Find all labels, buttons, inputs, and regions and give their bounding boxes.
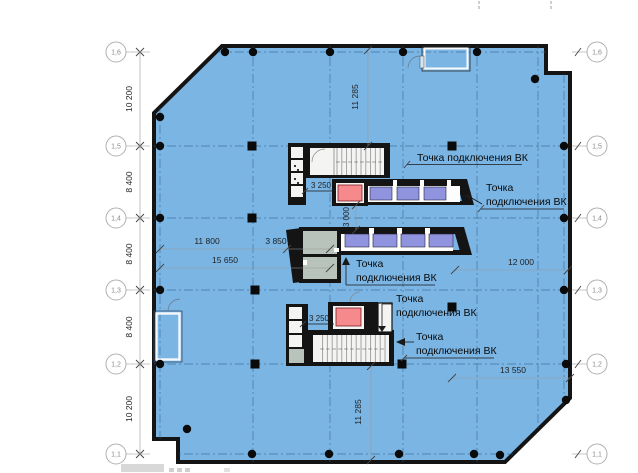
axis-label: 1,6 [592,50,602,57]
elevator-car [429,234,453,247]
dim-label: 13 550 [500,365,526,375]
elevator-car [397,187,419,200]
axis-marker-left-1: 1,6 [106,42,126,62]
callout-text: Точка [416,331,443,343]
dim-label: 8 400 [124,171,134,193]
axis-marker-right-2: 1,5 [587,136,607,156]
dim-label: 3 250 [311,181,332,190]
dim-label: 3 250 [309,314,330,323]
service-room [303,231,337,254]
axis-marker-left-2: 1,5 [106,136,126,156]
dim-label: 3 850 [265,236,287,246]
shaft-cell [291,173,303,184]
axis-label: 1,1 [592,452,602,459]
axis-label: 1,2 [592,362,602,369]
door-gap [397,228,402,234]
axis-label: 1,1 [111,452,121,459]
cropped-mark [224,468,230,472]
callout-text: Точка [486,182,513,194]
column [156,214,164,222]
shaft-cell [291,147,303,158]
dim-label: 11 285 [353,399,363,425]
column [399,48,407,56]
axis-marker-left-6: 1,1 [106,444,126,464]
shaft-mark [297,182,299,184]
service-elevator [338,185,362,201]
axis-marker-right-5: 1,2 [587,354,607,374]
door-gap [420,180,424,186]
column-square [251,286,260,295]
floor-plan-page: 10 200 8 400 8 400 8 400 10 200 11 285 3… [0,0,638,473]
axis-marker-right-6: 1,1 [587,444,607,464]
column [473,48,481,56]
callout-text: подключения ВК [486,196,567,208]
column [531,75,539,83]
shaft-mark [297,169,299,171]
column [156,142,164,150]
elevator-car [370,187,392,200]
column-square [448,142,457,151]
column [326,48,334,56]
door-gap [334,248,339,252]
callout-text: Точка подключения ВК [417,152,529,164]
dim-label: 8 400 [124,243,134,265]
shaft-cell [291,186,303,197]
callout-text: подключения ВК [396,307,477,319]
dim-label: 10 200 [124,86,134,112]
grid-stub-lines [479,1,551,9]
door-gap [369,228,374,234]
column [248,450,256,458]
dim-label: 12 000 [508,257,534,267]
column-square [248,214,257,223]
elevator-car [345,234,369,247]
shaft-mark [294,165,296,167]
axis-label: 1,2 [111,362,121,369]
axis-marker-right-3: 1,4 [587,208,607,228]
axis-marker-left-4: 1,3 [106,280,126,300]
column [470,450,478,458]
cropped-mark [169,468,174,472]
stair-treads [334,148,384,175]
cropped-label-box [121,464,164,472]
shaft-cell [291,160,303,171]
side-wall [366,302,378,333]
dim-label: 15 650 [212,255,238,265]
axis-label: 1,5 [111,144,121,151]
column [395,450,403,458]
column [562,396,570,404]
service-cell [289,349,304,363]
service-elevator [336,308,361,326]
axis-label: 1,3 [592,288,602,295]
column-square [251,360,260,369]
callout-text: подключения ВК [356,272,437,284]
column [560,214,568,222]
column [560,142,568,150]
dim-label: 3 000 [342,206,351,227]
axis-label: 1,4 [111,216,121,223]
stair-treads [320,335,386,362]
callout-text: Точка [356,258,383,270]
dim-label: 11 800 [194,236,220,246]
door-gap [447,180,451,186]
door-gap [303,260,307,265]
column [156,286,164,294]
column [156,113,164,121]
axis-label: 1,5 [592,144,602,151]
elevator-car [373,234,397,247]
elevator-car [424,187,446,200]
bottom-cropped-fragments [121,464,230,472]
cropped-mark [177,468,182,472]
axis-label: 1,6 [111,50,121,57]
cropped-mark [185,468,190,472]
column [562,360,570,368]
dim-label: 10 200 [124,396,134,422]
shaft-mark [294,178,296,180]
dim-label: 8 400 [124,316,134,338]
axis-marker-right-1: 1,6 [587,42,607,62]
column [249,48,257,56]
axis-marker-left-5: 1,2 [106,354,126,374]
axis-label: 1,4 [592,216,602,223]
column [325,450,333,458]
column [560,286,568,294]
column [183,425,191,433]
axis-leader-lines-right [572,52,587,454]
door-leaf [420,56,424,68]
column [496,451,504,459]
column-square [398,360,407,369]
axis-ticks-right [575,48,581,458]
dim-label: 11 285 [350,84,360,110]
axis-marker-right-4: 1,3 [587,280,607,300]
elevator-car [401,234,425,247]
axis-marker-left-3: 1,4 [106,208,126,228]
shaft-cell [289,307,302,319]
callout-text: подключения ВК [416,345,497,357]
callout-text: Точка [396,293,423,305]
column [221,48,229,56]
axis-label: 1,3 [111,288,121,295]
floor-plan-canvas: 10 200 8 400 8 400 8 400 10 200 11 285 3… [0,0,638,473]
column-square [248,142,257,151]
column [156,360,164,368]
door-gap [425,228,430,234]
shaft-cell [289,335,302,347]
door-gap [393,180,397,186]
